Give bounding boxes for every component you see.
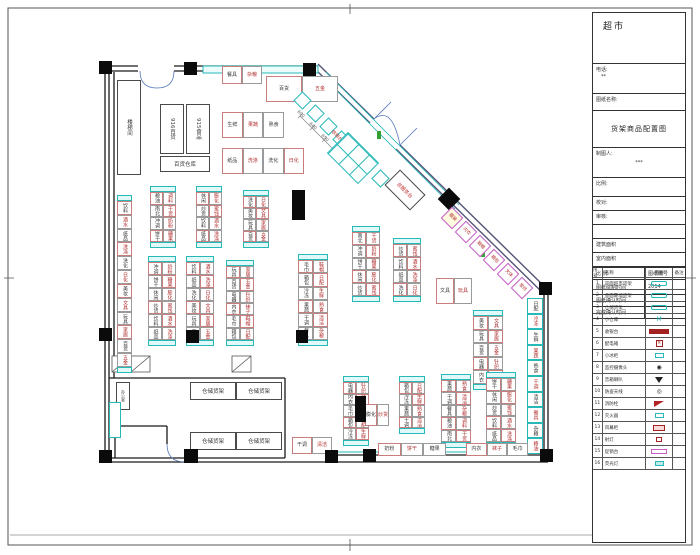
- service-desk: 总服务台: [384, 169, 425, 210]
- title-block: 超市 电话: ** 图纸名称: 货架商品配置图 制图人: *** 比例:校对:审…: [592, 12, 686, 543]
- drafter-box: 制图人: ***: [593, 148, 685, 178]
- shelf-cell: 粮油: [441, 417, 456, 429]
- shelf-cell: 饮料: [148, 314, 162, 327]
- legend-no: 4: [593, 314, 603, 325]
- shelf-cell: 日化: [407, 283, 421, 296]
- shelf-cells: 南北干货冲调奶粉饼干糖果休闲膨化炒货蜜饯: [352, 232, 380, 296]
- legend-header-cell: 名称: [603, 268, 646, 277]
- plan-box: 百货仓库: [160, 156, 210, 172]
- column-diamond: [438, 188, 461, 211]
- legend-row: 9音箱喇叭: [593, 374, 685, 386]
- legend-name: 荧光灯: [603, 458, 646, 469]
- legend-symbol-cell: M: [646, 314, 673, 325]
- shelf-run: 日配冷冻生鲜果蔬熟食干调清洁餐具杂粮粮油: [527, 298, 543, 454]
- shelf-cell-label: 炒货: [398, 246, 403, 256]
- column: [303, 63, 316, 76]
- shelf-cell: 糖果: [501, 378, 516, 391]
- shelf-cell: 奶粉: [366, 245, 380, 258]
- legend-name: 防盗天线: [603, 386, 646, 397]
- shelf-cell-label: 箱包: [303, 275, 308, 285]
- shelf-cell: 酒水: [162, 314, 176, 327]
- shelf-cell-label: 纸品: [200, 231, 205, 241]
- shelf-cell-label: 袜子: [492, 447, 502, 452]
- shelf-cell: 炒货: [352, 283, 366, 296]
- legend-note: [673, 290, 685, 301]
- shelf-cell: 炒货: [393, 244, 407, 257]
- drawing-name-label: 图纸名称:: [593, 94, 685, 103]
- shelf-cell: 清洁: [313, 313, 328, 326]
- cyanbox-icon: [651, 293, 667, 298]
- shelf-cell: 饼干: [150, 230, 163, 243]
- shelf-cell-label: 文具: [205, 303, 210, 313]
- shelf-endcap: [343, 440, 369, 446]
- shelf-cell-label: 粮油: [446, 418, 451, 428]
- legend-note: [673, 434, 685, 445]
- shelf-cell-label: 百货: [279, 87, 289, 92]
- shelf-cell: 洗涤: [117, 242, 132, 256]
- shelf-cell-label: 干货: [371, 233, 376, 243]
- shelf-cell: 饮料: [393, 257, 407, 270]
- shelf-cells: 文具玩具: [436, 278, 472, 304]
- shelf-cell-label: 日配: [318, 275, 323, 285]
- shelf-cell-label: 冷冻: [303, 288, 308, 298]
- redsm-icon: [656, 437, 662, 442]
- column: [186, 330, 199, 343]
- shelf-cell: 文具: [200, 301, 214, 314]
- shelf-cell-label: 家居: [205, 316, 210, 326]
- shelf-cell: 炒货: [377, 404, 389, 426]
- legend-note: [673, 398, 685, 409]
- shelf-cell: 针织: [356, 382, 369, 394]
- shelf-cell: 针织: [488, 357, 503, 371]
- shelf-endcap: [393, 296, 421, 302]
- legend-symbol-cell: [646, 290, 673, 301]
- shelf-cell-label: 熟食: [533, 363, 538, 373]
- shelf-endcap: [226, 340, 254, 346]
- shelf-cell: 日配: [240, 328, 254, 340]
- legend-symbol-cell: [646, 302, 673, 313]
- legend-no: 2: [593, 290, 603, 301]
- shelf-cell-label: 纸品: [122, 231, 127, 241]
- shelf-cell-label: 内衣: [231, 304, 236, 314]
- shelf-cell: 熟食: [412, 405, 425, 417]
- redx-icon: ×: [656, 340, 663, 347]
- shelf-cell-label: 生鲜: [318, 288, 323, 298]
- shelf-cell: 膨化: [209, 192, 222, 205]
- shelf-cell-label: 百货: [247, 231, 252, 241]
- shelf-cell: 蜜饯: [209, 205, 222, 218]
- dimension-label: 640: [307, 122, 317, 132]
- column: [363, 449, 376, 462]
- shelf-cell: 袜子: [487, 443, 508, 456]
- column: [99, 61, 112, 74]
- legend-note: [673, 374, 685, 385]
- shelf-cell-label: 熟食: [416, 406, 421, 416]
- shelf-cell-label: 五金: [205, 329, 210, 339]
- shelf-cell: 美妆: [186, 301, 200, 314]
- legend-no: 12: [593, 410, 603, 421]
- shelf-cell-label: 百货: [231, 279, 236, 289]
- shelf-cell-label: 杂粮: [533, 426, 538, 436]
- shelf-cell-label: 鞋帽: [245, 316, 250, 326]
- legend-symbol-cell: [646, 458, 673, 469]
- circ-icon: ◎: [656, 388, 661, 395]
- shelf-cell-label: 杂粮: [247, 73, 257, 78]
- shelf-cell: 五金: [200, 327, 214, 340]
- shelf-cell-label: 果蔬: [248, 123, 258, 128]
- plan-box: 仓储货架: [236, 432, 282, 450]
- shelf-cell-label: 餐具: [533, 410, 538, 420]
- shelf-cell: 休闲: [148, 288, 162, 301]
- legend-no: 3: [593, 302, 603, 313]
- promo-cell-label: 服装: [447, 213, 457, 223]
- shelf-cells: 毛巾鞋帽箱包日配冷冻生鲜果蔬熟食干调清洁餐具杂粮: [298, 260, 328, 340]
- column: [99, 328, 112, 341]
- msym-icon: M: [656, 316, 661, 323]
- shelf-cell: 干货: [456, 430, 471, 442]
- shelf-cell: 玩具: [454, 278, 472, 304]
- legend-row: 11消防栓: [593, 398, 685, 410]
- shelf-cell-label: 糖果: [506, 379, 511, 389]
- shelf-cell: 干货: [163, 205, 176, 218]
- shelf-cell-label: 糖果: [371, 259, 376, 269]
- shelf-cell-label: 酒水: [205, 264, 210, 274]
- shelf-cell: 生鲜: [412, 394, 425, 406]
- shelf-cell: 袜子: [240, 303, 254, 315]
- shelf-cell-label: 南北: [446, 431, 451, 441]
- legend-row: 5收银台: [593, 326, 685, 338]
- shelf-cell-label: 饮料: [153, 316, 158, 326]
- shelf-cell-label: 毛巾: [303, 262, 308, 272]
- shelf-cell-label: 饼干: [357, 259, 362, 269]
- magbox-icon: [651, 449, 667, 454]
- shelf-cell: 洗涤: [209, 230, 222, 243]
- shelf-cell-label: 日化: [260, 197, 265, 207]
- drafter-value: ***: [593, 157, 685, 166]
- shelf-cell: 玩具: [186, 314, 200, 327]
- shelf-cell: 饮料: [196, 217, 209, 230]
- shelf-cell: 糖果: [366, 258, 380, 271]
- shelf-cell-label: 日配: [245, 329, 250, 339]
- shelf-cell: 美妆: [243, 208, 256, 220]
- shelf-cell-label: 五金: [493, 345, 498, 355]
- shelf-cell: 生鲜: [356, 428, 369, 440]
- shelf-run: 洗化日化美妆文具玩具家居百货五金: [243, 190, 269, 248]
- legend-row: 16荧光灯: [593, 458, 685, 470]
- shelf-cell: 蜜饯: [162, 301, 176, 314]
- shelf-cell-label: 干调: [303, 315, 308, 325]
- shelf-cell: 清洁: [412, 417, 425, 429]
- shelf-cell-label: 玩具: [231, 267, 236, 277]
- shelf-cell-label: 饼干: [153, 277, 158, 287]
- shelf-cell-label: 冲调: [154, 218, 159, 228]
- shelf-cell-label: 纸品: [191, 277, 196, 287]
- shelf-cell: 餐具: [222, 66, 242, 84]
- shelf-cell: 文具: [256, 208, 269, 220]
- column: [184, 449, 198, 463]
- shelf-cell: 文具: [488, 316, 503, 330]
- legend-no: 16: [593, 458, 603, 469]
- shelf-cell: 膨化: [365, 404, 377, 426]
- shelf-cell: 干调: [399, 417, 412, 429]
- legend-symbol-cell: [646, 350, 673, 361]
- shelf-cell: 果蔬: [527, 345, 543, 361]
- shelf-cell-label: 生鲜: [360, 429, 365, 439]
- shelf-cell: 箱包: [399, 382, 412, 394]
- shelf-cell-label: 熟食: [269, 123, 279, 128]
- shelf-cell: 冷冻: [527, 314, 543, 330]
- legend-symbol-cell: ◉: [646, 362, 673, 373]
- legend-note: [673, 314, 685, 325]
- shelf-cell-label: 内衣: [347, 394, 352, 404]
- legend-no: 13: [593, 422, 603, 433]
- legend-note: [673, 302, 685, 313]
- shelf-cell-label: 箱包: [347, 418, 352, 428]
- legend-no: 9: [593, 374, 603, 385]
- shelf-cells: 箱包日配冷冻生鲜果蔬熟食干调清洁: [399, 382, 425, 428]
- shelf-cell-label: 文具: [493, 318, 498, 328]
- shelf-cell: 百货: [243, 231, 256, 243]
- legend-header-cell: 图例: [646, 268, 673, 277]
- shelf-cell: 玩具: [473, 330, 488, 344]
- column: [540, 449, 553, 462]
- legend-row: 6配电箱×: [593, 338, 685, 350]
- shelf-cell-label: 文具: [260, 208, 265, 218]
- shelf-cells: 粮油调料南北干货冲调奶粉饼干糖果: [150, 192, 176, 242]
- shelf-cell: 蜜饯: [366, 283, 380, 296]
- shelf-cell-label: 熟食: [461, 381, 466, 391]
- shelf-cell: 家居: [240, 266, 254, 278]
- shelf-cell-label: 美妆: [191, 303, 196, 313]
- column: [292, 190, 305, 220]
- shelf-cell-label: 休闲: [357, 272, 362, 282]
- shelf-cell: 纸品: [196, 230, 209, 243]
- shelf-cell: 杂粮: [313, 327, 328, 340]
- cyanbox-icon: [651, 305, 667, 310]
- shelf-cell-label: 膨化: [366, 413, 376, 418]
- legend-row: 8监控摄像头◉: [593, 362, 685, 374]
- phone-label: 电话:: [593, 64, 685, 73]
- shelf-cell: 冲调: [148, 262, 162, 275]
- shelf-cell: 粮油: [150, 192, 163, 205]
- tri-icon: [655, 377, 663, 383]
- shelf-cell: 日化: [117, 270, 132, 284]
- shelf-cell: 清洁: [527, 392, 543, 408]
- shelf-cell: 日化: [200, 288, 214, 301]
- shelf-cell-label: 蜜饯: [167, 303, 172, 313]
- shelf-cell: 日配: [412, 382, 425, 394]
- shelf-cell-label: 炒货: [378, 413, 388, 418]
- shelf-cell: 奶粉: [378, 443, 401, 456]
- shelf-cell-label: 果蔬: [403, 406, 408, 416]
- shelf-cell: 纸品: [486, 429, 501, 442]
- shelf-cell: 百货: [226, 278, 240, 290]
- cyansm-icon: [655, 353, 664, 358]
- legend-symbol-cell: [646, 446, 673, 457]
- shelf-cell-label: 玩具: [191, 316, 196, 326]
- shelf-cell-label: 奶粉: [371, 246, 376, 256]
- cyansm-icon: [655, 413, 664, 418]
- shelf-cell-label: 干调: [297, 443, 307, 448]
- shelf-cell: 生鲜: [313, 287, 328, 300]
- legend-no: 11: [593, 398, 603, 409]
- shelf-cell-label: 玩具: [247, 220, 252, 230]
- shelf-cell-label: 休闲: [200, 193, 205, 203]
- shelf-cells: 饮料酒水纸品洗涤洗化日化美妆文具玩具家居百货五金: [117, 201, 132, 367]
- shelf-run: 箱包日配冷冻生鲜果蔬熟食干调清洁: [399, 376, 425, 434]
- shelf-cell-label: 酒水: [213, 218, 218, 228]
- legend-note: [673, 422, 685, 433]
- plan-box: 楼梯间: [117, 80, 141, 175]
- shelf-cell-label: 纸品: [227, 159, 237, 164]
- shelf-cell-label: 玩具: [478, 331, 483, 341]
- shelf-cell: 内衣: [466, 443, 487, 456]
- shelf-cell-label: 针织: [360, 383, 365, 393]
- shelf-cell-label: 饮料: [191, 264, 196, 274]
- legend-no: 14: [593, 434, 603, 445]
- shelf-cell: 炒货: [486, 404, 501, 417]
- shelf-cell-label: 蜜饯: [371, 285, 376, 295]
- shelf-cell-label: 日配: [416, 383, 421, 393]
- legend-row: 7小冰柜: [593, 350, 685, 362]
- promo-cell-label: 文体: [503, 269, 513, 279]
- promo-cell-label: 家纺: [517, 283, 527, 293]
- redbox-icon: [653, 425, 665, 431]
- shelf-endcap: [243, 242, 269, 248]
- shelf-cell-label: 洗化: [247, 197, 252, 207]
- shelf-cell-label: 生鲜: [416, 394, 421, 404]
- shelf-cell-label: 调料: [167, 193, 172, 203]
- legend-row: 10防盗天线◎: [593, 386, 685, 398]
- legend-row: 4小仓库M: [593, 314, 685, 326]
- shelf-cell-label: 酒水: [412, 259, 417, 269]
- phone-value: **: [593, 73, 685, 80]
- shelf-cell-label: 洗涤: [122, 244, 127, 254]
- title-field-label: 建筑面积: [593, 239, 685, 248]
- shelf-cell: 奶粉: [162, 262, 176, 275]
- shelf-cell: 餐具: [441, 405, 456, 417]
- shelf-cell-label: 饼干: [154, 231, 159, 241]
- shelf-cell: 纸品: [222, 148, 243, 174]
- shelf-cell: 熟食: [263, 112, 284, 138]
- shelf-cell-label: 五金: [260, 231, 265, 241]
- shelf-cell-label: 生鲜: [533, 332, 538, 342]
- shelf-cell: 饼干: [352, 258, 366, 271]
- legend-name: 小冰柜: [603, 350, 646, 361]
- shelf-cells: 炒货蜜饯饮料酒水纸品洗涤洗化日化: [393, 244, 421, 296]
- shelf-run: 休闲膨化炒货蜜饯饮料酒水纸品洗涤: [196, 186, 222, 248]
- shelf-cell-label: 美妆: [478, 318, 483, 328]
- shelf-cell-label: 洗涤: [213, 231, 218, 241]
- legend-name: 射灯: [603, 434, 646, 445]
- shelf-cell: 休闲: [196, 192, 209, 205]
- shelf-cell: 冷冻: [399, 394, 412, 406]
- shelf-cell-label: 洗涤: [506, 431, 511, 441]
- shelf-cell-label: 饮料: [122, 203, 127, 213]
- shelf-cell: 果蔬: [441, 380, 456, 392]
- shelf-cells: 生鲜果蔬熟食: [222, 112, 284, 138]
- title-field-label: 审核:: [593, 211, 685, 220]
- shelf-cell-label: 内衣: [471, 447, 481, 452]
- shelf-cell: 毛巾: [298, 260, 313, 273]
- shelf-cell-label: 毛巾: [347, 406, 352, 416]
- shelf-cell: 毛巾: [507, 443, 528, 456]
- shelf-cell: 果蔬: [298, 300, 313, 313]
- shelf-cell: 针织: [240, 291, 254, 303]
- shelf-cell: 洗涤: [407, 270, 421, 283]
- shelf-cell-label: 日化: [412, 285, 417, 295]
- shelf-endcap: [196, 242, 222, 248]
- shelf-run: 饼干糖果休闲膨化炒货蜜饯饮料酒水纸品洗涤: [486, 372, 516, 448]
- shelf-cell-label: 清洁: [317, 443, 327, 448]
- shelf-endcap: [148, 340, 176, 346]
- shelf-cell-label: 家居: [493, 331, 498, 341]
- shelf-cell: 酒水: [117, 215, 132, 229]
- shelf-cell-label: 膨化: [167, 290, 172, 300]
- shelf-cell: 美妆: [117, 284, 132, 298]
- shelf-cell: 家居: [200, 314, 214, 327]
- shelf-cell-label: 饮料: [398, 259, 403, 269]
- column: [539, 282, 552, 295]
- shelf-run: 粮油调料南北干货冲调奶粉饼干糖果: [150, 186, 176, 248]
- shelf-cell: 炒货: [196, 205, 209, 218]
- title-field: 室内面积: [593, 253, 685, 267]
- shelf-cell-label: 熟食: [318, 302, 323, 312]
- shelf-cell-label: 针织: [245, 292, 250, 302]
- shelf-cell-label: 奶粉: [167, 218, 172, 228]
- shelf-cell-label: 蜜饯: [506, 405, 511, 415]
- shelf-cell: 休闲: [486, 391, 501, 404]
- column: [355, 396, 366, 422]
- shelf-cell-label: 纸品: [491, 431, 496, 441]
- shelf-cell: 果蔬: [399, 405, 412, 417]
- legend-note: [673, 338, 685, 349]
- shelf-cell-label: 休闲: [153, 290, 158, 300]
- shelf-cell-label: 五金: [315, 87, 325, 92]
- shelf-cell: 五金: [240, 278, 254, 290]
- shelf-cell: 清洁: [456, 392, 471, 404]
- shelf-cells: 玩具家居百货五金电器针织内衣袜子毛巾鞋帽箱包日配: [226, 266, 254, 340]
- shelf-cells: 果蔬熟食干调清洁餐具杂粮粮油调料南北干货: [441, 380, 471, 442]
- shelf-cell-label: 冲调: [357, 246, 362, 256]
- shelf-cell-label: 电器: [231, 292, 236, 302]
- shelf-cell: 南北: [352, 232, 366, 245]
- legend-note: [673, 458, 685, 469]
- shelf-cell-label: 冷冻: [347, 429, 352, 439]
- shelf-cell: 南北: [441, 430, 456, 442]
- shelf-cell-label: 针织: [493, 359, 498, 369]
- shelf-cell: 蜜饯: [407, 244, 421, 257]
- shelf-cells: 奶粉饼干糖果: [378, 443, 446, 456]
- legend-row: 15促销台: [593, 446, 685, 458]
- shelf-cell-label: 纸品: [398, 272, 403, 282]
- legend-note: [673, 410, 685, 421]
- shelf-cell-label: 炒货: [153, 303, 158, 313]
- shelf-cell-label: 洗化: [268, 159, 278, 164]
- shelf-cell: 箱包: [298, 273, 313, 286]
- title-field-label: 校对:: [593, 197, 685, 206]
- shelf-cell: 膨化: [366, 270, 380, 283]
- shelf-cell-label: 五金: [122, 355, 127, 365]
- shelf-cell-label: 粮油: [154, 193, 159, 203]
- shelf-cell: 饼干: [148, 275, 162, 288]
- shelf-cell-label: 百货: [478, 345, 483, 355]
- legend-row: 2单面靠墙货架: [593, 290, 685, 302]
- shelf-cell: 糖果: [423, 443, 446, 456]
- legend-note: [673, 362, 685, 373]
- shelf-cell-label: 冷冻: [533, 316, 538, 326]
- cam-icon: ◉: [656, 364, 661, 371]
